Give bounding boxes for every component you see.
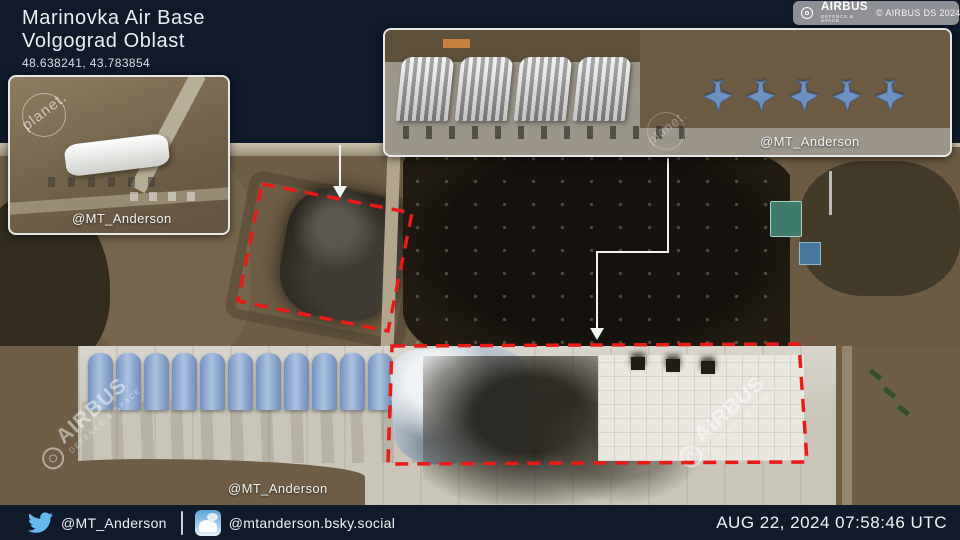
parked-vehicles (130, 192, 200, 201)
jet-silhouette-icon (702, 77, 733, 112)
silver-hangar (455, 57, 514, 121)
blue-arched-shelter (256, 353, 281, 410)
jet-silhouette-icon (788, 77, 819, 112)
planet-watermark: planet. (647, 112, 707, 157)
airbus-brand: AIRBUS (821, 2, 868, 14)
planet-watermark: planet. (22, 93, 92, 163)
blue-arched-shelter (144, 353, 169, 410)
dirt-track (842, 346, 852, 505)
teal-roof-building (770, 201, 802, 237)
jet-silhouette-icon (831, 77, 862, 112)
blue-arched-shelter (312, 353, 337, 410)
jet-silhouette-icon (874, 77, 905, 112)
coordinates: 48.638241, 43.783854 (22, 56, 205, 70)
footer-divider (181, 511, 183, 535)
parked-vehicles (48, 177, 168, 187)
fighter-jet-row (701, 76, 907, 114)
burn-scar-center (403, 147, 795, 365)
silver-hangar-row (399, 57, 628, 121)
twitter-icon (28, 512, 53, 533)
photo-credit: @MT_Anderson (228, 481, 328, 496)
blue-roof-building (799, 242, 821, 265)
title-block: Marinovka Air Base Volgograd Oblast 48.6… (22, 7, 205, 70)
mast-structure (829, 171, 832, 215)
jet-silhouette-icon (745, 77, 776, 112)
burned-aircraft-spot (701, 361, 715, 374)
airbus-emblem-icon (801, 7, 813, 19)
blue-arched-shelter (200, 353, 225, 410)
page-subtitle: Volgograd Oblast (22, 30, 205, 53)
inset-credit: @MT_Anderson (72, 211, 172, 226)
bluesky-handle: @mtanderson.bsky.social (229, 515, 395, 531)
fighter-jet (873, 76, 907, 114)
blue-arched-shelter (368, 353, 393, 410)
burned-aircraft-spot (631, 357, 645, 370)
blue-arched-shelter (172, 353, 197, 410)
orange-roof-building (443, 39, 470, 48)
fighter-jet (701, 76, 735, 114)
bluesky-icon (195, 510, 221, 536)
page-title: Marinovka Air Base (22, 7, 205, 30)
capture-timestamp: AUG 22, 2024 07:58:46 UTC (716, 513, 947, 533)
inset-before-flightline: planet. @MT_Anderson (383, 28, 952, 157)
airbus-division: DEFENCE & SPACE (821, 15, 868, 24)
road (130, 75, 205, 193)
fighter-jet (830, 76, 864, 114)
fighter-jet (744, 76, 778, 114)
burned-aircraft-spot (666, 359, 680, 372)
airbus-copyright: © AIRBUS DS 2024 (876, 8, 960, 18)
silver-hangar (573, 57, 632, 121)
twitter-handle: @MT_Anderson (61, 515, 167, 531)
terrain (836, 346, 960, 505)
blue-arched-shelter (340, 353, 365, 410)
blue-arched-shelter (228, 353, 253, 410)
blue-arched-shelter (284, 353, 309, 410)
infographic-canvas: AIRBUS DEFENCE & SPACE AIRBUS DEFENCE & … (0, 0, 960, 540)
silver-hangar (396, 57, 455, 121)
silver-hangar (514, 57, 573, 121)
footer-bar: @MT_Anderson @mtanderson.bsky.social AUG… (0, 505, 960, 540)
inset-credit: @MT_Anderson (760, 134, 860, 149)
burn-scar-right (800, 161, 960, 296)
inset-before-hangar: planet. @MT_Anderson (8, 75, 230, 235)
fighter-jet (787, 76, 821, 114)
airbus-credit-badge: AIRBUS DEFENCE & SPACE © AIRBUS DS 2024 (793, 1, 959, 25)
